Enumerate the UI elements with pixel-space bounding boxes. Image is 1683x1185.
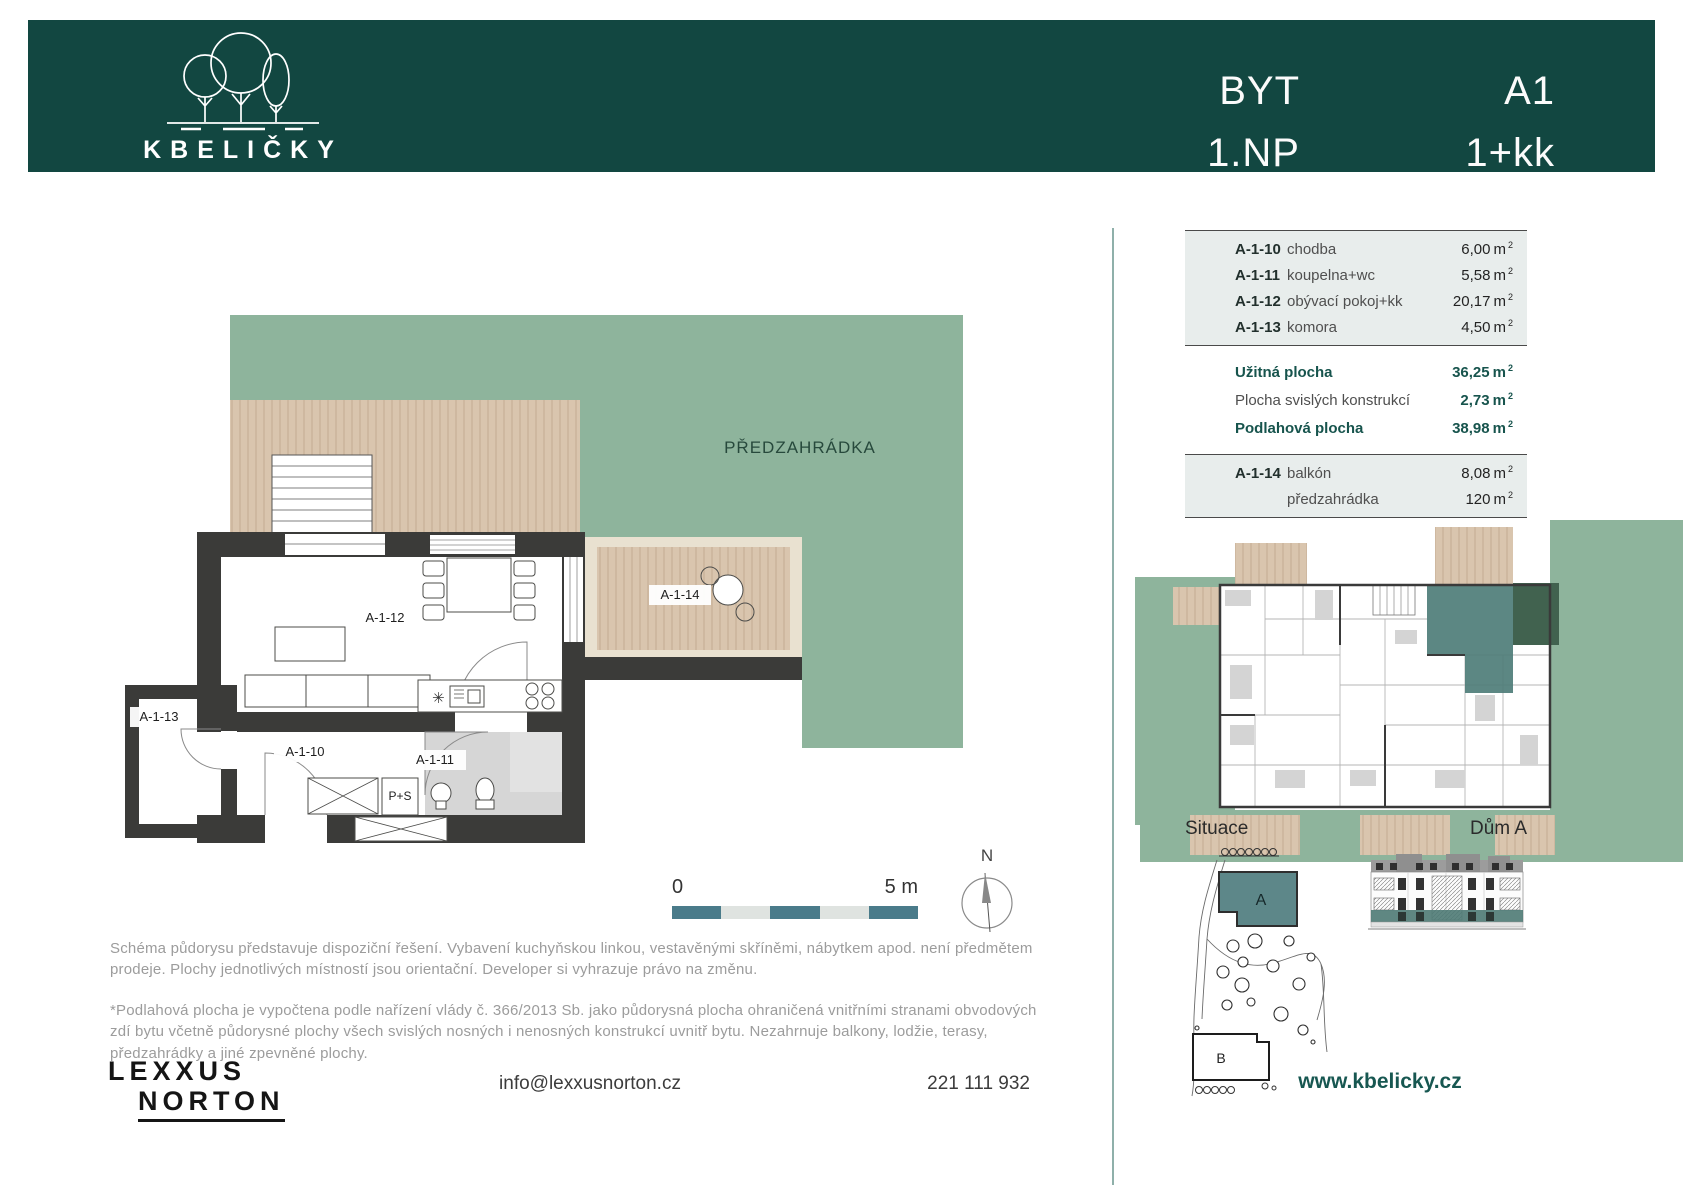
room-name: koupelna+wc [1287,267,1461,284]
house-caption: Dům A [1327,818,1527,840]
unit-id-label: A1 [1348,60,1555,122]
tv-cabinet [275,627,345,661]
header-band: KBELIČKY BYT 1.NP A1 1+kk [28,20,1655,172]
room-area: 4,50 m2 [1461,318,1513,336]
washbasin [431,783,451,803]
balcony-retaining-wall [562,657,802,680]
table-row: A-1-13 komora 4,50 m2 [1185,314,1527,340]
room-name: balkón [1287,465,1461,482]
north-arrow: N [952,845,1022,940]
overview-highlighted-balcony [1513,583,1559,645]
room-area: 120 m2 [1465,490,1513,508]
room-code: A-1-13 [1235,319,1287,336]
table-row: A-1-12 obývací pokoj+kk 20,17 m2 [1185,288,1527,314]
balcony-table [713,575,743,605]
building-elevation [1368,850,1528,945]
summary-label: Užitná plocha [1235,364,1452,381]
terrace-deck [230,400,580,535]
floor-plan: ✳ [100,295,1000,855]
kbelicky-logo: KBELIČKY [113,24,373,172]
svg-text:✳: ✳ [432,690,445,707]
summary-row: Užitná plocha 36,25 m2 [1185,358,1527,386]
room-area: 6,00 m2 [1461,240,1513,258]
scale-bar-segments [672,906,918,919]
label-hallway: A-1-10 [285,744,324,759]
floor-label: 1.NP [1068,122,1300,184]
header-unit-info: BYT 1.NP [1068,60,1300,172]
dining-table [447,558,511,612]
site-building-b-label: B [1216,1050,1225,1066]
footer-phone: 221 111 932 [880,1073,1030,1095]
summary-value: 2,73 m2 [1460,391,1513,409]
brand-line-1: LEXXUS [108,1056,285,1086]
table-row: A-1-10 chodba 6,00 m2 [1185,236,1527,262]
room-area: 5,58 m2 [1461,266,1513,284]
sofa [245,675,430,707]
exterior-areas-block: A-1-14 balkón 8,08 m2 předzahrádka 120 m… [1185,454,1527,518]
table-row: A-1-14 balkón 8,08 m2 [1185,460,1527,486]
header-unit-id: A1 1+kk [1348,60,1555,172]
overview-stairs [1373,585,1415,615]
summary-label: Plocha svislých konstrukcí [1235,392,1460,409]
logo-wordmark: KBELIČKY [143,134,343,164]
north-label: N [981,846,993,865]
lexxus-norton-logo: LEXXUS NORTON [108,1056,285,1122]
garden-label: PŘEDZAHRÁDKA [724,438,876,457]
label-bathroom: A-1-11 [416,752,454,767]
elevation-ground-floor-highlight [1371,910,1523,922]
room-name: komora [1287,319,1461,336]
room-name: chodba [1287,241,1461,258]
site-plan: A B [1185,842,1345,1100]
site-trees [1195,934,1315,1044]
summary-value: 38,98 m2 [1452,419,1513,437]
floor-overview-plan [1135,515,1683,862]
table-row: předzahrádka 120 m2 [1185,486,1527,512]
site-building-a-label: A [1256,892,1267,909]
room-code: A-1-10 [1235,241,1287,258]
room-area: 20,17 m2 [1453,292,1513,310]
logo-trees-icon [167,33,319,129]
footer-website-link[interactable]: www.kbelicky.cz [1230,1070,1530,1094]
room-code: A-1-14 [1235,465,1287,482]
footer-email[interactable]: info@lexxusnorton.cz [420,1073,760,1095]
label-balcony: A-1-14 [660,587,699,602]
kitchen-counter: ✳ [418,680,562,712]
layout-label: 1+kk [1348,122,1555,184]
scale-bar: 0 5 m [672,876,918,919]
scale-end: 5 m [885,876,918,899]
disclaimer-paragraph-1: Schéma půdorysu představuje dispoziční ř… [110,938,1045,981]
unit-type-label: BYT [1068,60,1300,122]
label-storage: A-1-13 [139,709,178,724]
brand-line-2: NORTON [138,1086,285,1122]
label-washer: P+S [388,789,411,803]
area-table: A-1-10 chodba 6,00 m2 A-1-11 koupelna+wc… [1185,230,1527,518]
summary-label: Podlahová plocha [1235,420,1452,437]
table-row: A-1-11 koupelna+wc 5,58 m2 [1185,262,1527,288]
situace-caption: Situace [1185,818,1248,840]
deck-stairs [272,455,372,535]
label-living: A-1-12 [365,610,404,625]
vertical-divider [1112,228,1114,1185]
summary-block: Užitná plocha 36,25 m2 Plocha svislých k… [1185,346,1527,454]
room-name: obývací pokoj+kk [1287,293,1453,310]
room-name: předzahrádka [1287,491,1465,508]
balcony-glass-door [564,557,583,642]
summary-value: 36,25 m2 [1452,363,1513,381]
brochure-page: KBELIČKY BYT 1.NP A1 1+kk [0,0,1683,1185]
toilet [476,778,494,802]
room-code: A-1-11 [1235,267,1287,284]
disclaimer-paragraph-2: *Podlahová plocha je vypočtena podle nař… [110,1000,1045,1064]
summary-row: Plocha svislých konstrukcí 2,73 m2 [1185,386,1527,414]
room-code: A-1-12 [1235,293,1287,310]
room-area: 8,08 m2 [1461,464,1513,482]
room-areas-block: A-1-10 chodba 6,00 m2 A-1-11 koupelna+wc… [1185,230,1527,346]
summary-row: Podlahová plocha 38,98 m2 [1185,414,1527,442]
scale-start: 0 [672,876,683,899]
